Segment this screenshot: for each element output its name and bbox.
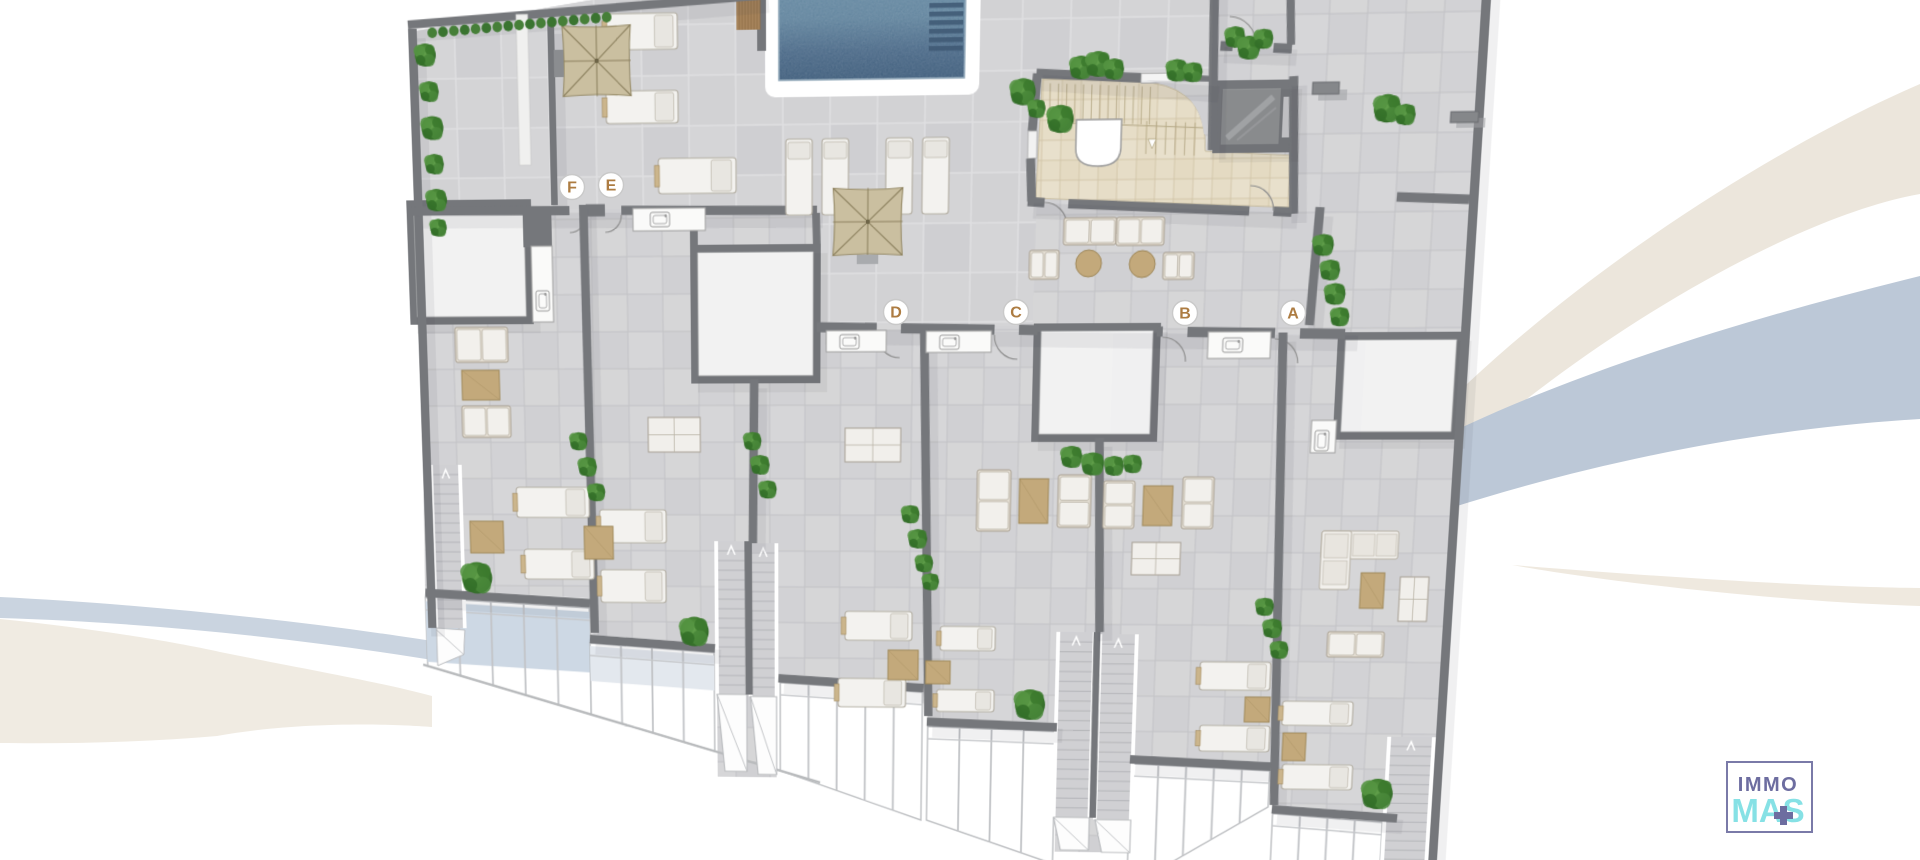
svg-text:MAS: MAS (1731, 792, 1804, 829)
svg-text:D: D (890, 305, 902, 322)
svg-text:F: F (567, 180, 577, 197)
svg-text:B: B (1179, 306, 1191, 323)
svg-text:E: E (606, 178, 617, 195)
svg-text:A: A (1287, 306, 1299, 323)
svg-text:C: C (1010, 305, 1022, 322)
